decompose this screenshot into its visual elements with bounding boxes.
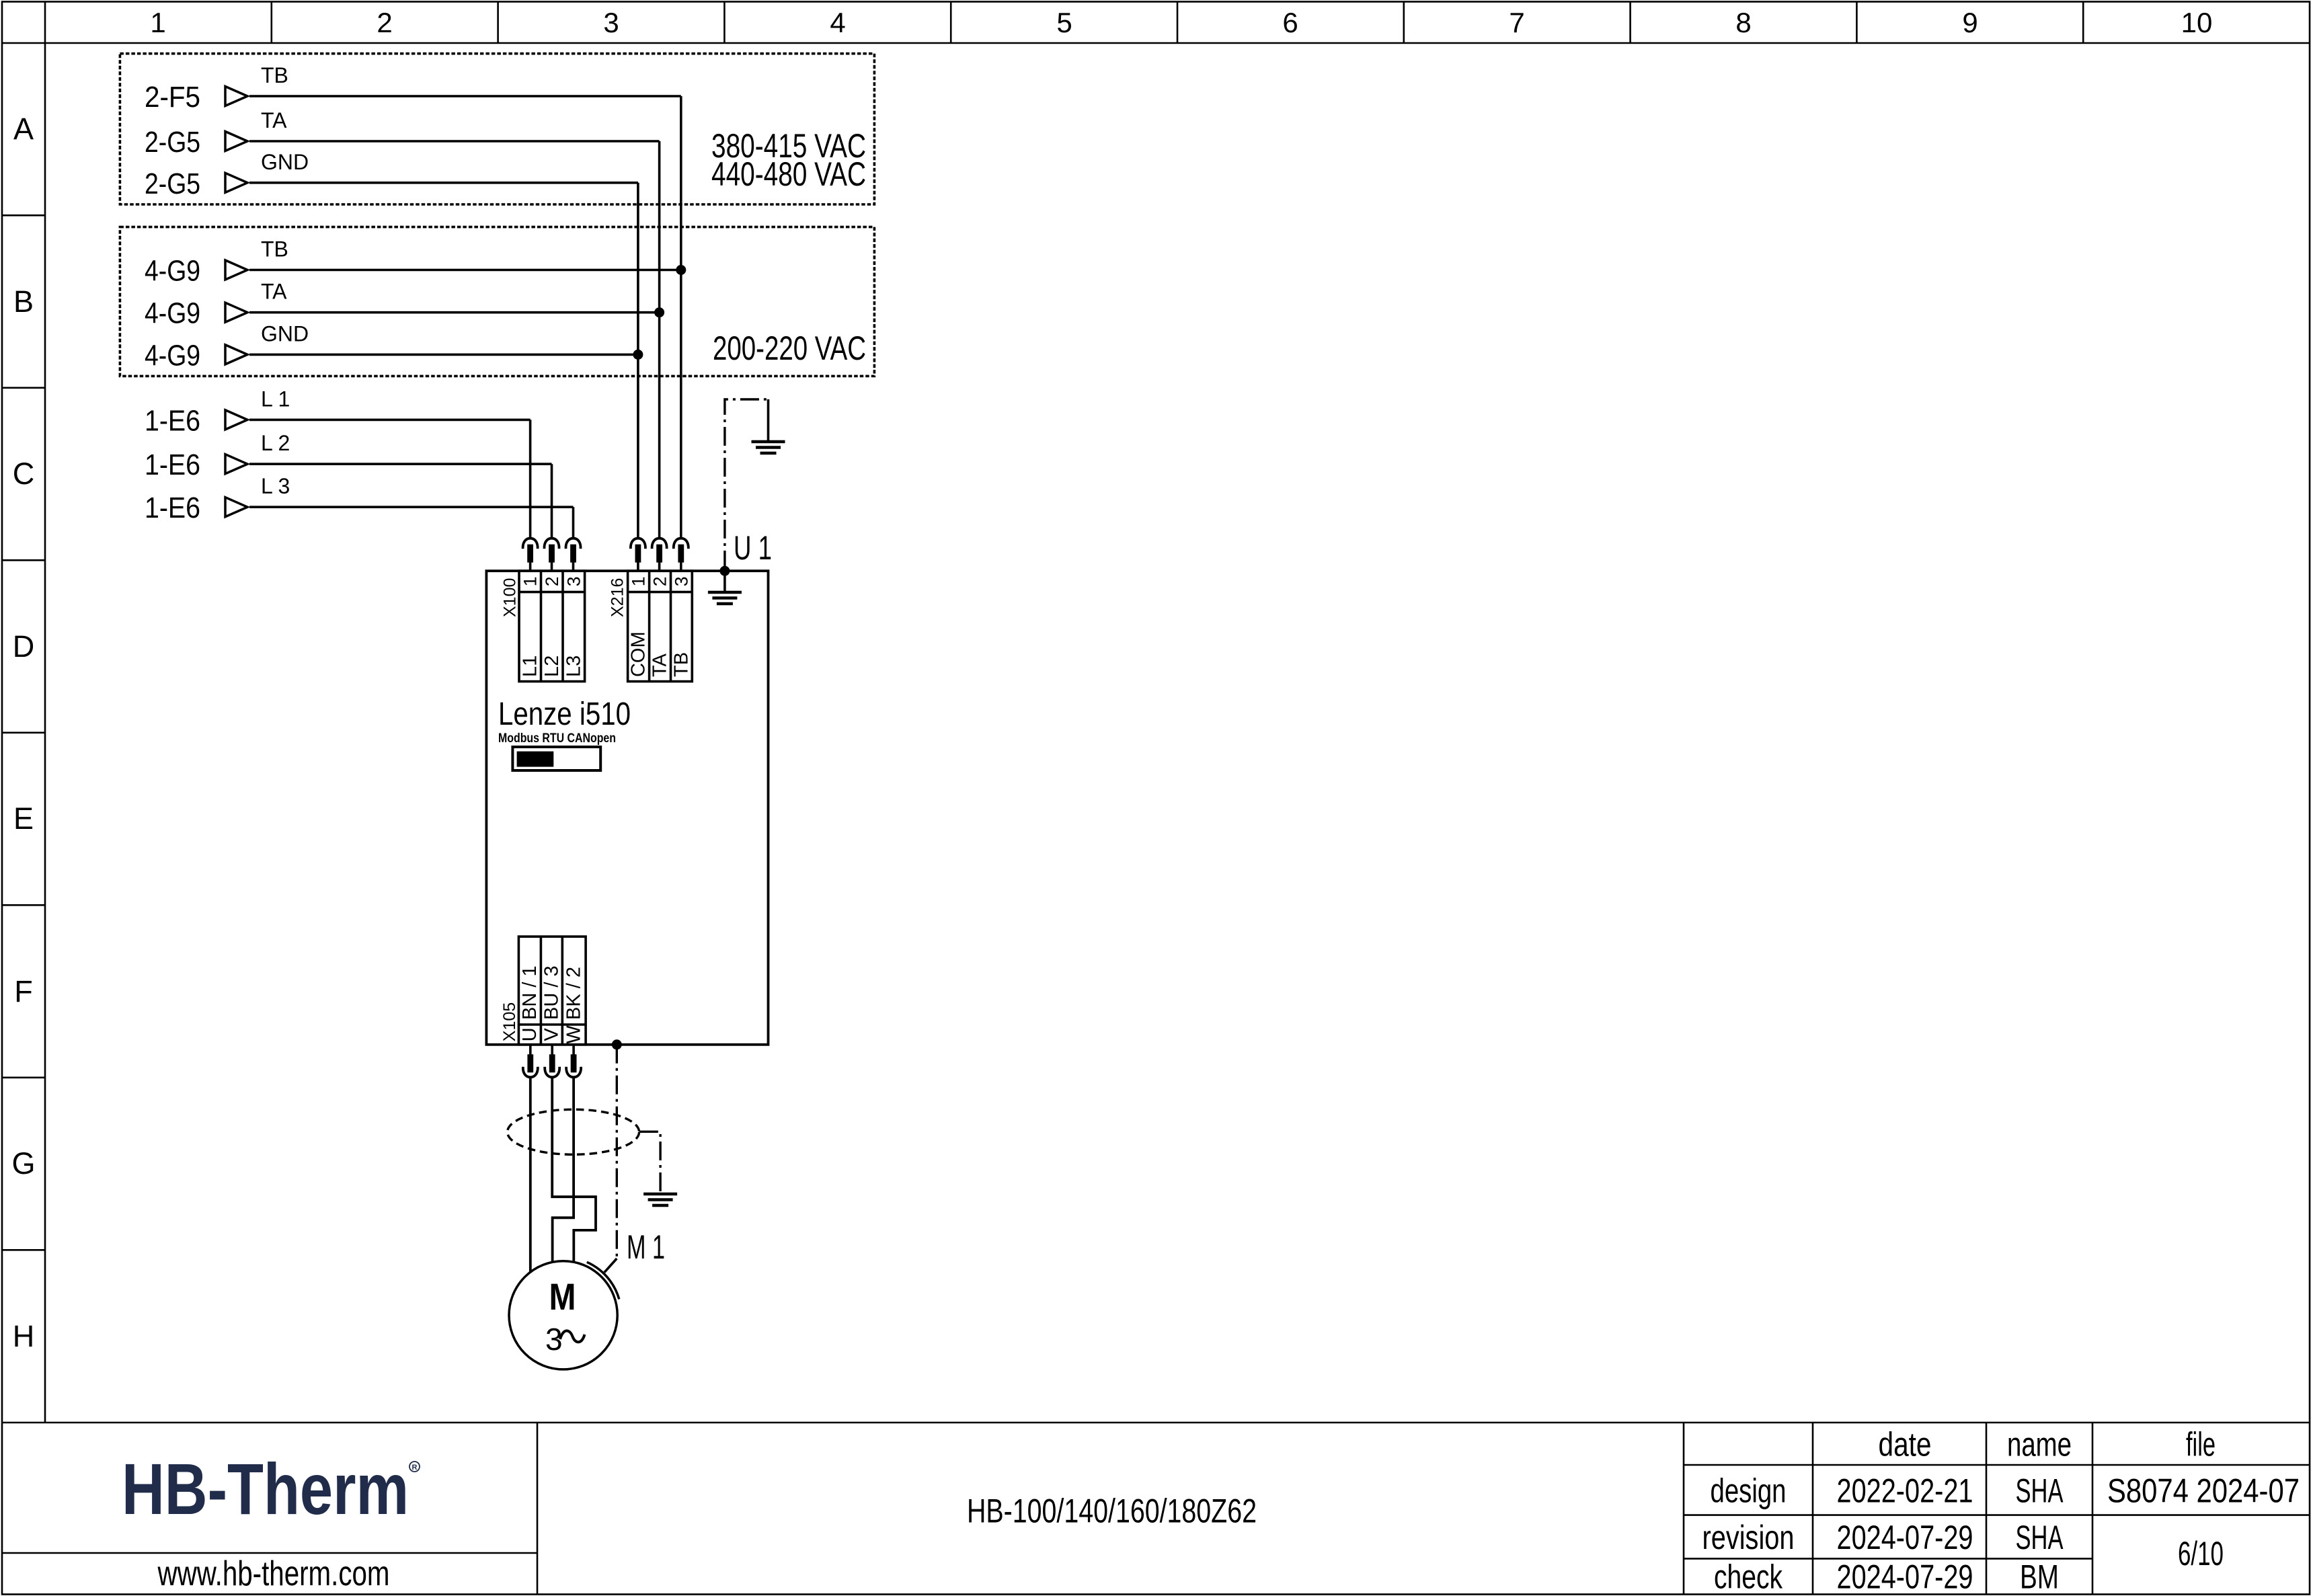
svg-text:X100: X100 (501, 578, 520, 617)
svg-text:TB: TB (261, 63, 288, 87)
svg-text:4: 4 (830, 7, 845, 38)
svg-text:R: R (412, 1464, 418, 1472)
svg-text:file: file (2186, 1426, 2216, 1464)
svg-text:TA: TA (261, 280, 287, 304)
svg-text:L2: L2 (541, 655, 563, 677)
svg-text:M: M (549, 1275, 576, 1318)
svg-text:3: 3 (563, 577, 584, 587)
svg-text:name: name (2007, 1426, 2072, 1464)
svg-text:6: 6 (1282, 7, 1298, 38)
svg-text:6/10: 6/10 (2178, 1535, 2224, 1572)
svg-text:440-480 VAC: 440-480 VAC (711, 155, 866, 193)
svg-text:3: 3 (671, 577, 691, 587)
svg-text:A: A (13, 112, 34, 146)
svg-text:TA: TA (261, 108, 287, 132)
svg-text:E: E (13, 801, 34, 836)
svg-text:2024-07-29: 2024-07-29 (1837, 1558, 1973, 1596)
svg-text:BM: BM (2020, 1558, 2059, 1596)
svg-text:B: B (13, 284, 34, 319)
svg-text:BK / 2: BK / 2 (563, 967, 585, 1020)
svg-text:www.hb-therm.com: www.hb-therm.com (157, 1554, 390, 1593)
svg-text:L3: L3 (563, 655, 584, 677)
svg-text:date: date (1879, 1426, 1932, 1464)
svg-text:GND: GND (261, 150, 309, 174)
svg-text:2-F5: 2-F5 (145, 81, 200, 114)
svg-text:check: check (1714, 1558, 1783, 1596)
svg-text:BN / 1: BN / 1 (519, 965, 541, 1020)
svg-text:L 1: L 1 (261, 387, 290, 411)
svg-text:L 2: L 2 (261, 431, 290, 455)
svg-text:design: design (1711, 1472, 1787, 1510)
svg-text:revision: revision (1702, 1519, 1795, 1556)
svg-text:TB: TB (670, 652, 692, 677)
svg-text:4-G9: 4-G9 (145, 297, 200, 330)
svg-text:F: F (14, 974, 33, 1008)
svg-text:10: 10 (2181, 7, 2213, 38)
svg-text:3: 3 (545, 1322, 563, 1357)
svg-text:8: 8 (1735, 7, 1751, 38)
svg-text:200-220 VAC: 200-220 VAC (713, 329, 866, 367)
svg-text:U 1: U 1 (734, 529, 772, 567)
svg-text:H: H (13, 1319, 35, 1353)
svg-text:M 1: M 1 (627, 1228, 665, 1266)
svg-text:2: 2 (542, 577, 562, 587)
svg-text:BU / 3: BU / 3 (541, 965, 562, 1020)
svg-text:2-G5: 2-G5 (145, 126, 200, 159)
svg-text:W: W (563, 1025, 585, 1044)
svg-text:4-G9: 4-G9 (145, 255, 200, 288)
svg-text:D: D (13, 629, 35, 664)
svg-text:5: 5 (1056, 7, 1072, 38)
svg-text:2022-02-21: 2022-02-21 (1837, 1472, 1973, 1510)
svg-text:4-G9: 4-G9 (145, 339, 200, 372)
svg-text:HB-Therm: HB-Therm (122, 1448, 409, 1529)
svg-text:COM: COM (628, 631, 650, 677)
svg-text:1: 1 (520, 577, 540, 587)
svg-text:2-G5: 2-G5 (145, 167, 200, 200)
svg-text:C: C (13, 456, 35, 491)
svg-text:S8074 2024-07: S8074 2024-07 (2107, 1472, 2300, 1510)
svg-text:1: 1 (150, 7, 165, 38)
svg-text:Modbus RTU CANopen: Modbus RTU CANopen (498, 731, 616, 746)
svg-text:2: 2 (650, 577, 670, 587)
svg-text:X105: X105 (500, 1002, 519, 1041)
svg-text:TA: TA (650, 653, 671, 677)
svg-text:G: G (11, 1146, 35, 1181)
svg-text:SHA: SHA (2016, 1519, 2064, 1556)
svg-text:SHA: SHA (2016, 1472, 2064, 1510)
svg-text:1-E6: 1-E6 (145, 448, 200, 481)
svg-text:L1: L1 (519, 655, 541, 677)
svg-text:V: V (541, 1028, 562, 1041)
svg-text:TB: TB (261, 237, 288, 262)
svg-text:1: 1 (629, 577, 649, 587)
svg-text:2: 2 (377, 7, 392, 38)
svg-text:Lenze i510: Lenze i510 (498, 696, 631, 732)
svg-text:GND: GND (261, 321, 309, 346)
svg-text:L 3: L 3 (261, 474, 290, 498)
svg-text:X216: X216 (609, 578, 627, 617)
svg-text:HB-100/140/160/180Z62: HB-100/140/160/180Z62 (967, 1492, 1257, 1530)
svg-text:9: 9 (1962, 7, 1977, 38)
svg-text:1-E6: 1-E6 (145, 491, 200, 524)
svg-text:2024-07-29: 2024-07-29 (1837, 1519, 1973, 1556)
svg-text:3: 3 (603, 7, 619, 38)
svg-text:7: 7 (1509, 7, 1524, 38)
svg-text:U: U (519, 1027, 541, 1041)
svg-text:1-E6: 1-E6 (145, 404, 200, 437)
